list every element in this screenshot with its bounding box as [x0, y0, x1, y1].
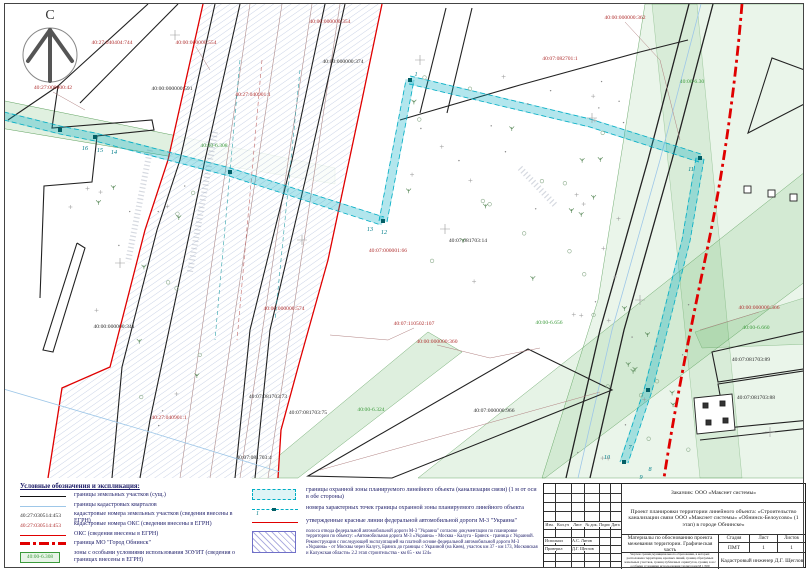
sheet-frame — [4, 3, 804, 568]
plan-sheet: 40:27:000000:4240:27:040404:74440:00:000… — [0, 0, 810, 573]
